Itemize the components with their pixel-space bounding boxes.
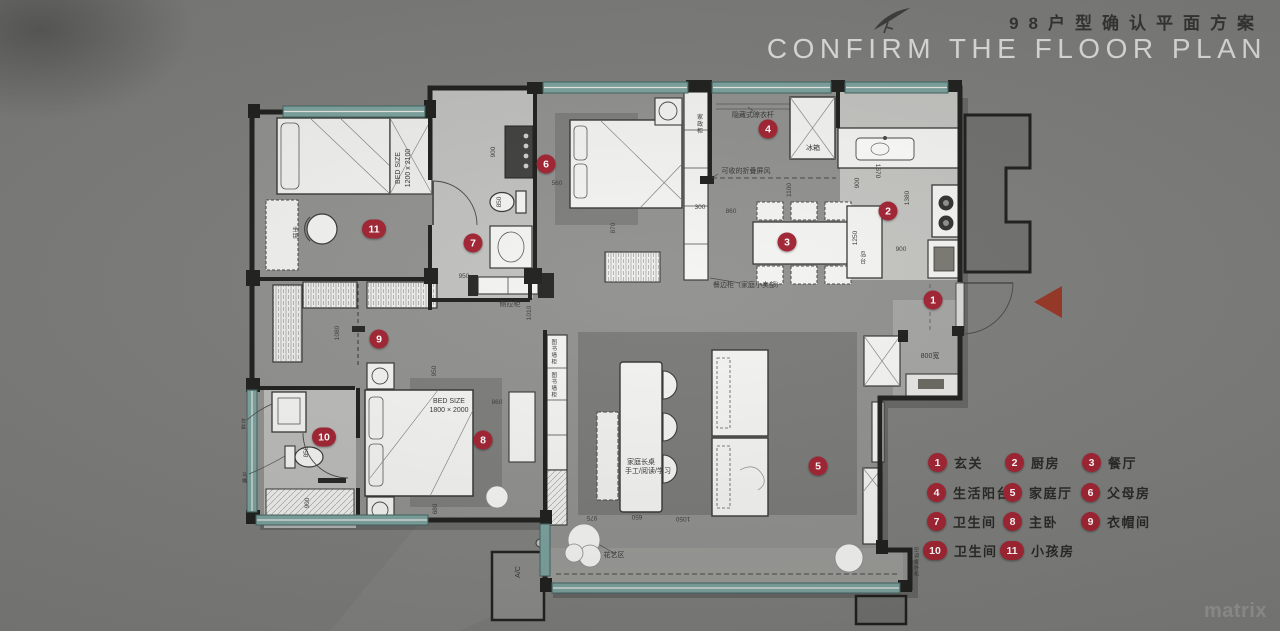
toilet <box>295 447 323 467</box>
plant <box>835 544 863 572</box>
cloak-closet <box>273 285 302 362</box>
dining-table <box>753 222 850 264</box>
kids-desk <box>266 200 298 270</box>
stair-shaft <box>965 115 1030 272</box>
floor-plan-drawing <box>0 0 1280 631</box>
paper-plane-icon <box>872 6 912 36</box>
bookshelf <box>547 335 567 470</box>
family-long-table <box>620 362 662 512</box>
kids-chair <box>307 214 337 244</box>
kitchen-sink <box>856 138 914 160</box>
page-title-en: CONFIRM THE FLOOR PLAN <box>767 33 1267 65</box>
sofa <box>712 350 768 436</box>
parents-wardrobe <box>605 252 660 282</box>
cloak-closet <box>367 282 437 308</box>
service-cabinet <box>684 92 708 280</box>
island <box>847 206 882 278</box>
bench <box>597 412 618 500</box>
nightstand <box>367 363 394 389</box>
entry-arrow-icon <box>1034 286 1062 318</box>
cloak-closet <box>303 282 357 308</box>
plant <box>486 486 508 508</box>
entry-door-arc <box>962 283 1013 334</box>
page-title-cn: 98户型确认平面方案 <box>1009 9 1264 34</box>
kids-bed <box>277 118 390 194</box>
slide: 98户型确认平面方案 CONFIRM THE FLOOR PLAN BED SI… <box>0 0 1280 631</box>
toilet <box>490 193 514 212</box>
ac-platform <box>492 552 544 620</box>
matrix-watermark: matrix <box>1204 600 1267 623</box>
washer <box>505 126 533 178</box>
sofa <box>712 438 768 516</box>
